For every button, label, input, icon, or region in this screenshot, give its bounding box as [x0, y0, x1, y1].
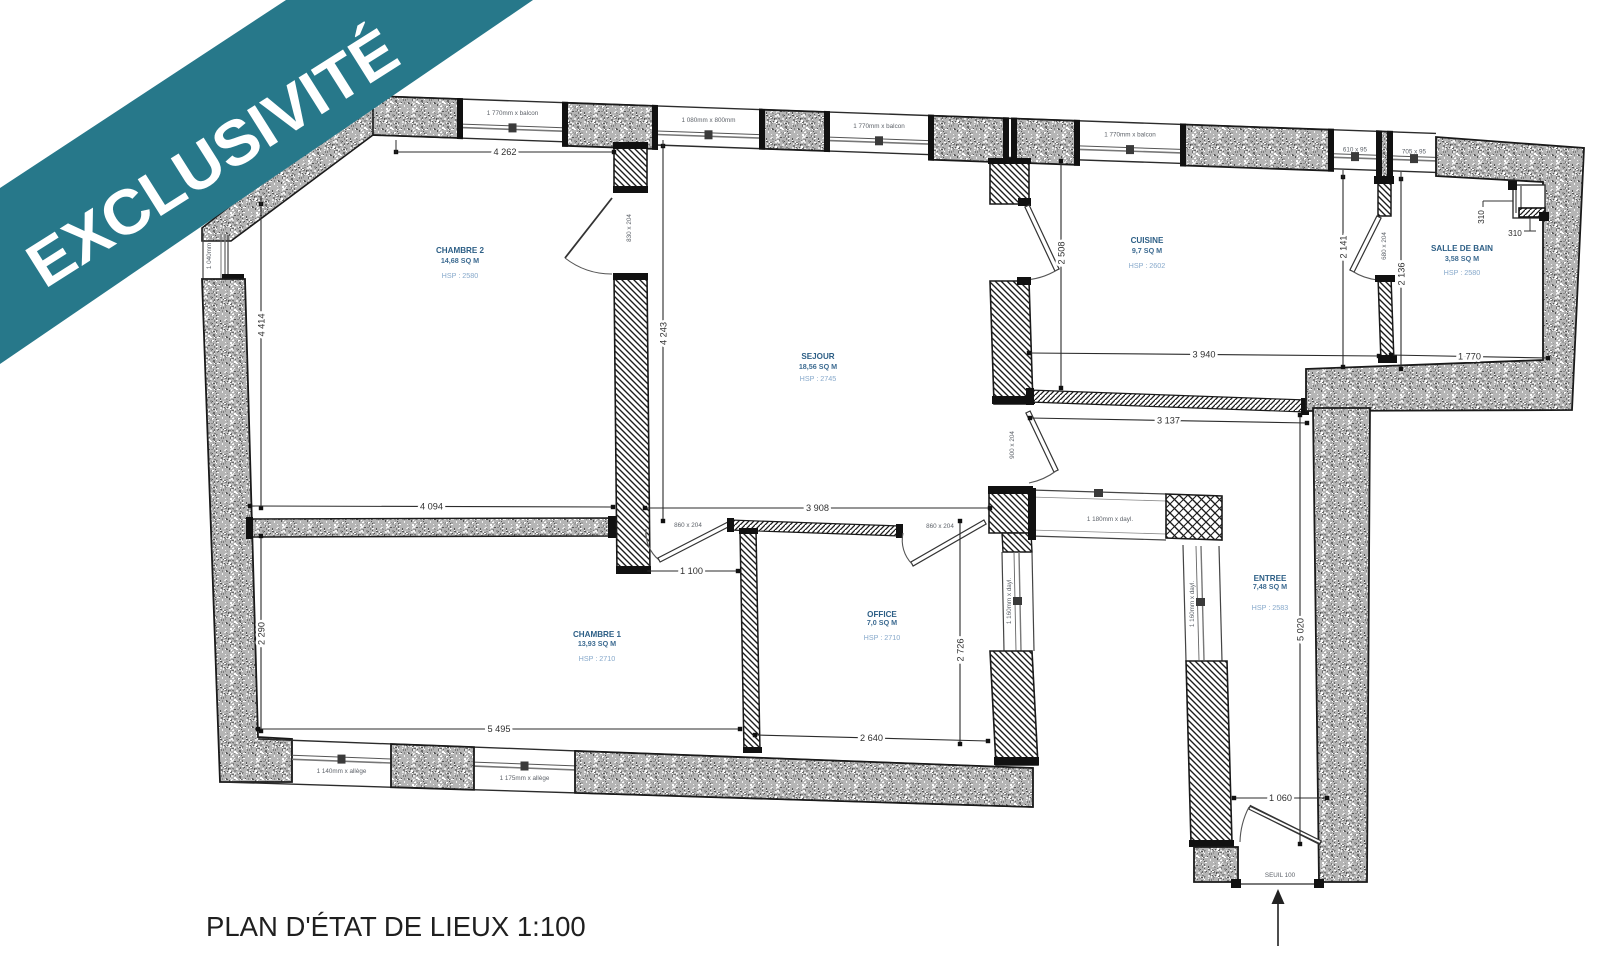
svg-text:CHAMBRE 1: CHAMBRE 1 — [573, 630, 622, 639]
svg-text:4 243: 4 243 — [658, 322, 668, 345]
svg-text:CHAMBRE 2: CHAMBRE 2 — [436, 246, 485, 255]
svg-text:7,48 SQ M: 7,48 SQ M — [1253, 582, 1287, 591]
svg-text:3,58 SQ M: 3,58 SQ M — [1445, 254, 1479, 263]
svg-text:1 080mm x 800mm: 1 080mm x 800mm — [682, 117, 736, 124]
svg-text:5 495: 5 495 — [488, 724, 511, 734]
svg-text:3 137: 3 137 — [1157, 416, 1180, 426]
svg-text:3 940: 3 940 — [1193, 350, 1216, 360]
svg-text:2 141: 2 141 — [1338, 236, 1348, 259]
svg-text:HSP : 2583: HSP : 2583 — [1252, 603, 1289, 612]
svg-text:830 x 204: 830 x 204 — [626, 214, 633, 242]
svg-text:SEUIL 100: SEUIL 100 — [1265, 872, 1296, 879]
svg-text:2 508: 2 508 — [1056, 242, 1066, 265]
svg-text:13,93 SQ M: 13,93 SQ M — [578, 639, 616, 648]
svg-text:705 x 95: 705 x 95 — [1402, 149, 1427, 156]
svg-text:310: 310 — [1477, 210, 1486, 224]
svg-text:1 770mm x balcon: 1 770mm x balcon — [853, 123, 905, 130]
svg-text:HSP : 2745: HSP : 2745 — [800, 374, 837, 383]
svg-text:860 x 204: 860 x 204 — [674, 522, 702, 529]
svg-text:310: 310 — [1508, 229, 1522, 238]
svg-text:2 726: 2 726 — [955, 639, 965, 662]
svg-text:900 x 204: 900 x 204 — [1009, 431, 1016, 459]
svg-text:9,7 SQ M: 9,7 SQ M — [1132, 246, 1162, 255]
svg-text:4 414: 4 414 — [256, 314, 266, 337]
svg-text:HSP : 2580: HSP : 2580 — [1444, 268, 1481, 277]
svg-text:4 262: 4 262 — [494, 147, 517, 157]
svg-text:1 100: 1 100 — [680, 566, 703, 576]
svg-text:2 136: 2 136 — [1396, 263, 1406, 286]
svg-text:18,56 SQ M: 18,56 SQ M — [799, 362, 837, 371]
svg-text:1 160mm x dayl.: 1 160mm x dayl. — [1189, 581, 1196, 627]
svg-text:4 094: 4 094 — [420, 502, 443, 512]
svg-text:1 770mm x balcon: 1 770mm x balcon — [487, 110, 539, 117]
svg-text:3 908: 3 908 — [806, 503, 829, 513]
svg-text:1 160mm x dayl.: 1 160mm x dayl. — [1006, 578, 1013, 624]
svg-text:7,0 SQ M: 7,0 SQ M — [867, 618, 897, 627]
svg-text:SALLE DE BAIN: SALLE DE BAIN — [1431, 244, 1493, 253]
svg-text:2 640: 2 640 — [860, 733, 883, 743]
svg-text:1 180mm x dayl.: 1 180mm x dayl. — [1087, 516, 1133, 523]
svg-text:610 x 95: 610 x 95 — [1343, 147, 1368, 154]
svg-text:PLAN D'ÉTAT DE LIEUX 1:100: PLAN D'ÉTAT DE LIEUX 1:100 — [206, 911, 586, 942]
svg-text:1 140mm x allège: 1 140mm x allège — [317, 768, 367, 775]
svg-text:1 770mm x balcon: 1 770mm x balcon — [1104, 132, 1156, 139]
svg-text:SEJOUR: SEJOUR — [801, 352, 834, 361]
svg-text:HSP : 2710: HSP : 2710 — [579, 654, 616, 663]
svg-text:CUISINE: CUISINE — [1131, 236, 1164, 245]
svg-text:1 060: 1 060 — [1269, 793, 1292, 803]
svg-text:14,68 SQ M: 14,68 SQ M — [441, 256, 479, 265]
svg-text:680 x 204: 680 x 204 — [1381, 232, 1388, 260]
svg-text:860 x 204: 860 x 204 — [926, 523, 954, 530]
svg-text:1 770: 1 770 — [1458, 352, 1481, 362]
svg-text:HSP : 2602: HSP : 2602 — [1129, 261, 1166, 270]
svg-text:HSP : 2710: HSP : 2710 — [864, 633, 901, 642]
svg-text:HSP : 2580: HSP : 2580 — [442, 271, 479, 280]
svg-text:5 020: 5 020 — [1295, 618, 1305, 641]
svg-text:1 175mm x allège: 1 175mm x allège — [500, 775, 550, 782]
svg-text:1 040mm: 1 040mm — [206, 243, 213, 269]
svg-text:2 290: 2 290 — [256, 622, 266, 645]
